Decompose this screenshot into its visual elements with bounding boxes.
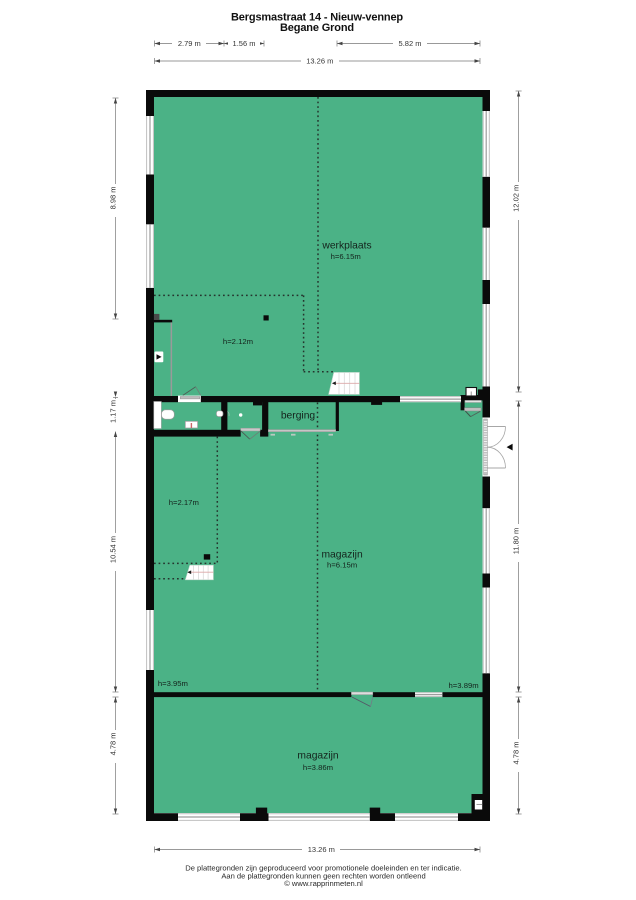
svg-text:13.26 m: 13.26 m (306, 57, 333, 66)
svg-text:magazijn: magazijn (321, 550, 362, 561)
svg-text:h=3.89m: h=3.89m (449, 681, 479, 690)
svg-text:1.56 m: 1.56 m (233, 39, 256, 48)
svg-text:1.17 m: 1.17 m (109, 400, 118, 423)
svg-text:h=2.17m: h=2.17m (169, 498, 199, 507)
svg-text:magazijn: magazijn (297, 751, 338, 762)
svg-text:h=2.12m: h=2.12m (223, 337, 253, 346)
svg-text:5.82 m: 5.82 m (399, 39, 422, 48)
svg-text:11.80 m: 11.80 m (512, 528, 521, 555)
svg-text:13.26 m: 13.26 m (308, 845, 335, 854)
svg-text:4.78 m: 4.78 m (512, 742, 521, 765)
svg-text:h=6.15m: h=6.15m (327, 560, 357, 569)
svg-text:h=6.15m: h=6.15m (331, 252, 361, 261)
svg-text:4.78 m: 4.78 m (109, 732, 118, 755)
svg-text:werkplaats: werkplaats (321, 240, 371, 251)
svg-text:2.79 m: 2.79 m (178, 39, 201, 48)
svg-text:12.02 m: 12.02 m (512, 185, 521, 212)
svg-text:8.98 m: 8.98 m (109, 186, 118, 209)
svg-text:h=3.95m: h=3.95m (158, 679, 188, 688)
svg-text:h=3.86m: h=3.86m (303, 763, 333, 772)
svg-text:berging: berging (281, 410, 316, 421)
svg-text:Begane Grond: Begane Grond (280, 22, 354, 34)
svg-text:10.54 m: 10.54 m (109, 536, 118, 563)
svg-text:© www.rapprinmeten.nl: © www.rapprinmeten.nl (284, 879, 363, 888)
